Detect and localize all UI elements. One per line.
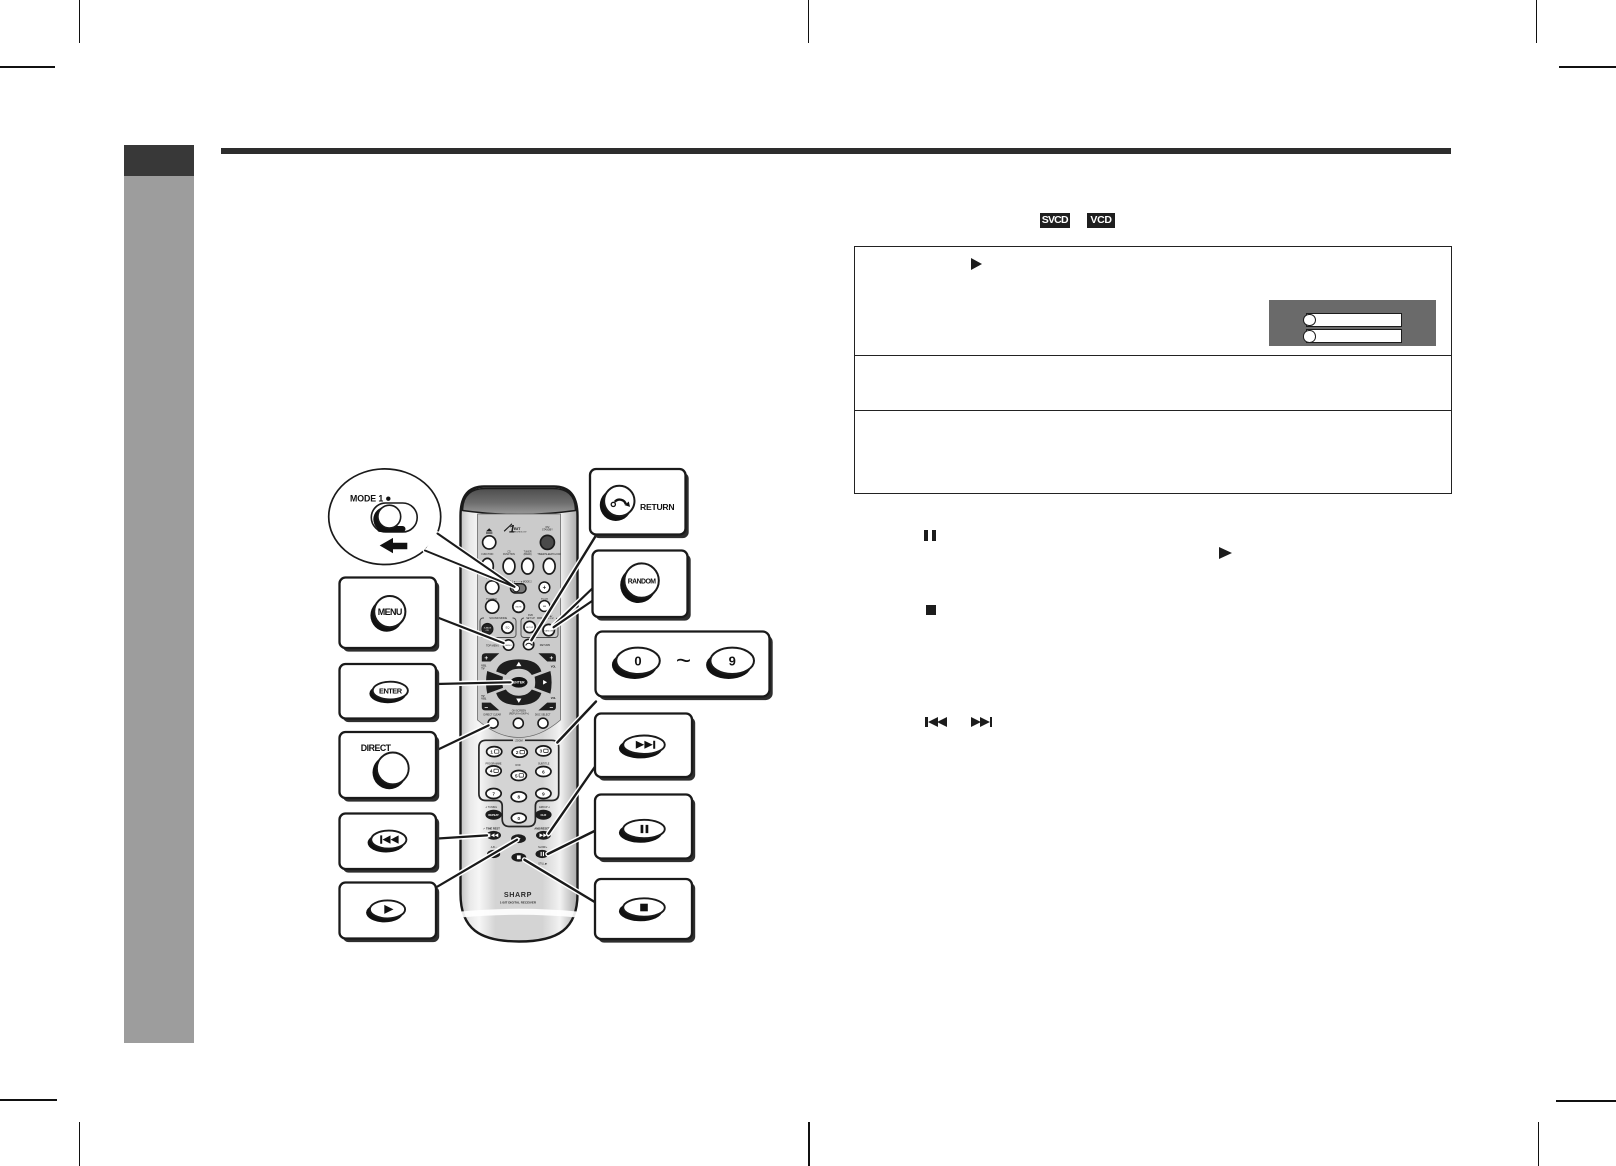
svg-text:TIMER/SLEEP/CLOCK: TIMER/SLEEP/CLOCK [537, 554, 561, 556]
svg-text:+: + [550, 655, 554, 662]
svg-text:~: ~ [676, 645, 691, 675]
svg-text:SUBTITLE: SUBTITLE [538, 762, 550, 765]
svg-text:DIRECT: DIRECT [361, 743, 392, 753]
svg-text:RETURN: RETURN [640, 502, 674, 512]
svg-text:MENU: MENU [505, 645, 512, 647]
svg-text:STANDBY: STANDBY [542, 528, 553, 531]
svg-text:−: − [543, 604, 547, 610]
svg-text:1-BIT DIGITAL RECEIVER: 1-BIT DIGITAL RECEIVER [500, 900, 537, 904]
svg-text:RANDOM: RANDOM [628, 578, 657, 585]
svg-text:✓ TIME REST: ✓ TIME REST [483, 827, 500, 831]
svg-text:(REPLAY+/SKIP+): (REPLAY+/SKIP+) [509, 713, 529, 716]
svg-text:4: 4 [490, 769, 493, 774]
svg-text:1: 1 [490, 749, 493, 754]
svg-text:SHARP: SHARP [504, 890, 532, 899]
svg-text:PROGRAMME: PROGRAMME [486, 762, 502, 765]
svg-text:/CD: /CD [486, 630, 490, 632]
svg-text:8: 8 [518, 795, 521, 800]
svg-text:DIRECT CLEAR: DIRECT CLEAR [484, 713, 502, 716]
svg-text:TOP MENU: TOP MENU [486, 645, 499, 648]
svg-text:−: − [484, 705, 488, 712]
svg-text:0: 0 [634, 653, 641, 668]
svg-text:STOP: STOP [548, 618, 554, 620]
svg-text:STILL ▶: STILL ▶ [538, 863, 547, 866]
svg-text:SLOW/+: SLOW/+ [538, 846, 548, 849]
svg-text:0: 0 [518, 816, 521, 821]
svg-text:5: 5 [515, 773, 518, 778]
svg-text:6: 6 [542, 769, 545, 774]
svg-text:ENTER: ENTER [513, 681, 525, 685]
svg-text:TECHNOLOGY: TECHNOLOGY [514, 532, 527, 534]
svg-text:RETURN: RETURN [540, 644, 551, 647]
svg-text:VOL: VOL [551, 697, 557, 700]
svg-text:REPEAT: REPEAT [488, 813, 499, 817]
svg-text:GROUP ∧: GROUP ∧ [539, 806, 550, 809]
svg-text:SET UP: SET UP [526, 617, 535, 620]
svg-text:EQ: EQ [506, 626, 510, 630]
svg-text:−: − [550, 705, 554, 712]
svg-text:3: 3 [540, 749, 543, 754]
svg-text:FUNCTION: FUNCTION [503, 554, 515, 556]
svg-text:CLR: CLR [541, 813, 547, 817]
svg-text:RANDOM: RANDOM [544, 629, 553, 632]
svg-text:VOL: VOL [551, 665, 557, 668]
svg-text:2: 2 [516, 750, 519, 755]
svg-text:9: 9 [729, 653, 736, 668]
svg-text:ZOOM: ZOOM [515, 739, 522, 742]
svg-text:+: + [543, 586, 547, 592]
svg-text:TV: TV [481, 668, 485, 671]
svg-text:MODE 1: MODE 1 [350, 493, 383, 503]
svg-text:VOL: VOL [481, 698, 487, 701]
svg-text:∧ TUNING: ∧ TUNING [485, 806, 497, 809]
svg-text:9: 9 [542, 791, 545, 796]
svg-text:MUTE: MUTE [516, 607, 523, 609]
svg-text:+: + [484, 655, 488, 662]
svg-text:DVD: DVD [515, 764, 520, 767]
svg-text:SETUP: SETUP [526, 627, 534, 629]
svg-text:DISC SELECT: DISC SELECT [535, 713, 551, 716]
svg-text:BIT: BIT [514, 526, 521, 531]
svg-text:FUNCTION: FUNCTION [481, 554, 493, 556]
svg-text:SOUND MODE: SOUND MODE [489, 616, 507, 620]
svg-text:(BAND): (BAND) [524, 553, 532, 556]
svg-text:A-B ○: A-B ○ [491, 846, 498, 849]
svg-text:MENU: MENU [378, 607, 402, 617]
svg-text:ENTER: ENTER [379, 686, 403, 695]
svg-text:7: 7 [492, 791, 495, 796]
